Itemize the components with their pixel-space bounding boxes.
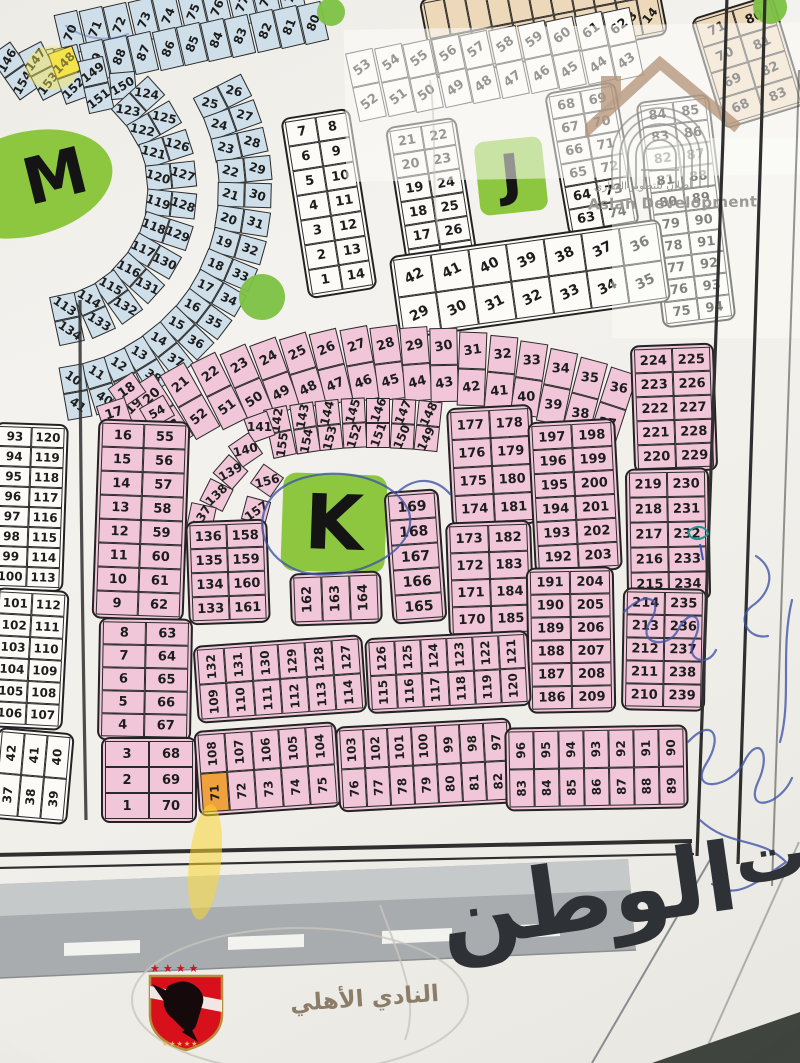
plot-cell: 85	[559, 768, 585, 806]
plot-cell: 94	[697, 294, 732, 320]
plot-cell: 148	[416, 400, 442, 427]
k-col-210-239: 214235213236212237211238210239	[621, 587, 707, 711]
plot-cell: 98	[459, 723, 485, 763]
plot-cell: 115	[28, 527, 62, 548]
plot-cell: 201	[575, 494, 616, 520]
plot-cell: 180	[492, 464, 532, 494]
plot-cell: 56	[143, 448, 186, 473]
plot-cell: 195	[534, 472, 575, 498]
plot-cell: 105	[278, 727, 308, 768]
k-left-col-c: 368269170	[101, 737, 197, 823]
plot-cell: 145	[341, 397, 366, 423]
plot-cell: 126	[368, 641, 396, 676]
k-row-162-164: 162163164	[289, 570, 383, 626]
plot-cell: 93	[583, 730, 609, 768]
plot-cell: 34	[586, 266, 629, 309]
plot-cell: 30	[430, 328, 459, 366]
plot-cell: 103	[0, 635, 30, 659]
plot-cell: 112	[31, 593, 65, 617]
plot-cell: 78	[389, 766, 415, 806]
plot-cell: 107	[26, 703, 60, 727]
m-ring-inner-item: 127120	[145, 161, 197, 192]
plot-cell: 90	[658, 728, 684, 766]
plot-cell: 69	[149, 767, 193, 793]
plot-cell: 233	[668, 546, 706, 572]
k-row-109-132-a: 132131130129128127109110111112113114	[192, 634, 367, 724]
plot-cell: 151	[366, 423, 390, 448]
plot-cell: 111	[253, 679, 282, 716]
plot-cell: 185	[491, 605, 531, 633]
plot-cell: 216	[630, 547, 668, 573]
plot-cell: 64	[145, 645, 188, 669]
plot-cell: 102	[0, 613, 31, 637]
plot-cell: 63	[146, 622, 189, 646]
plot-cell: 106	[0, 701, 27, 725]
plot-cell: 236	[664, 615, 702, 639]
plot-cell: 237	[664, 638, 702, 662]
k-inner-arc-item: 148149	[413, 400, 442, 452]
plot-cell: 154	[293, 426, 321, 454]
plot-cell: 70	[149, 793, 193, 819]
plot-cell: 73	[254, 768, 284, 809]
plot-cell: 133	[192, 596, 230, 621]
plot-cell: 178	[489, 408, 529, 438]
plot-cell: 239	[663, 684, 701, 708]
plot-cell: 91	[633, 729, 659, 767]
plot-cell: 124	[420, 638, 448, 673]
k-inner-arc-item: 145152	[341, 397, 368, 448]
plot-cell: 177	[450, 410, 490, 440]
k-inner-corner-inner-item: 156	[250, 464, 284, 498]
plot-cell: 196	[533, 448, 574, 474]
plot-cell: 183	[489, 551, 529, 579]
plot-cell: 29	[399, 326, 430, 365]
plot-cell: 41	[431, 249, 474, 292]
plot-cell: 134	[55, 316, 86, 346]
plot-cell: 181	[493, 492, 533, 522]
plot-cell: 75	[664, 298, 699, 324]
plot-cell: 174	[455, 494, 495, 524]
m-ring-outer-item: 3021	[218, 182, 273, 208]
plot-cell: 33	[515, 341, 548, 382]
plot-cell: 225	[672, 347, 711, 372]
k-left-col-b: 863764665566467	[97, 617, 193, 742]
plot-cell: 169	[388, 493, 437, 521]
plot-cell: 66	[144, 691, 187, 715]
plot-cell: 5	[101, 690, 144, 714]
plot-cell: 228	[674, 419, 713, 444]
k-col-220-229: 224225223226222227221228220229	[630, 343, 718, 474]
plot-cell: 121	[498, 634, 526, 669]
plot-cell: 128	[170, 191, 198, 219]
plot-cell: 98	[0, 526, 28, 547]
k-col-165-169: 169168167166165	[383, 488, 447, 625]
plot-cell: 72	[227, 770, 257, 811]
plot-cell: 207	[571, 639, 611, 663]
plot-cell: 119	[474, 669, 502, 704]
plot-cell: 150	[390, 423, 415, 449]
w-col-101-112: 101112102111103110104109105108106107	[0, 587, 70, 731]
plot-cell: 38	[544, 233, 587, 276]
k-inner-arc-item: 144153	[315, 399, 344, 451]
plot-cell: 120	[145, 163, 173, 191]
plot-cell: 96	[508, 731, 534, 769]
plot-cell: 186	[532, 686, 572, 710]
plot-cell: 93	[0, 426, 32, 447]
plot-cell: 110	[226, 681, 255, 718]
plot-cell: 168	[389, 517, 438, 545]
k-col-174-181: 177178176179175180174181	[446, 404, 538, 528]
plot-cell: 202	[576, 518, 617, 544]
plot-cell: 42	[457, 368, 486, 406]
plot-cell: 101	[0, 591, 32, 615]
plot-cell: 40	[44, 735, 71, 779]
plot-cell: 31	[458, 331, 487, 369]
plot-cell: 203	[578, 542, 619, 568]
plot-cell: 123	[446, 637, 474, 672]
plot-cell: 235	[665, 592, 703, 616]
plot-cell: 28	[237, 127, 269, 157]
plot-cell: 114	[334, 673, 363, 710]
plot-cell: 187	[531, 663, 571, 687]
plot-cell: 81	[461, 762, 487, 802]
plot-cell: 231	[667, 496, 705, 522]
plot-cell: 143	[289, 401, 317, 429]
plot-cell: 100	[0, 566, 27, 587]
plot-cell: 10	[97, 567, 140, 592]
plot-cell: 173	[449, 525, 489, 553]
plot-cell: 36	[619, 223, 662, 266]
plot-cell: 33	[549, 271, 592, 314]
w-block-37-42: 424140373839	[0, 727, 75, 825]
plot-cell: 57	[142, 472, 185, 497]
plot-cell: 108	[27, 681, 61, 705]
plot-cell: 159	[227, 547, 265, 572]
plot-cell: 129	[278, 642, 307, 679]
plot-cell: 226	[673, 371, 712, 396]
plot-cell: 59	[140, 520, 183, 545]
plot-cell: 204	[570, 570, 610, 594]
block-m-letter: M	[17, 138, 94, 216]
plot-cell: 68	[149, 741, 193, 767]
plot-cell: 160	[228, 571, 266, 596]
plot-cell: 200	[574, 470, 615, 496]
watermark-company-name: Aslan Development	[588, 193, 758, 214]
watermark-arabic-text: أصلان للتطوير العقاري	[594, 179, 692, 193]
plot-cell: 131	[224, 646, 253, 683]
k-inner-arc-item: 146151	[366, 398, 390, 448]
plot-cell: 76	[341, 768, 367, 808]
plot-cell: 55	[144, 424, 187, 449]
plot-cell: 163	[321, 576, 351, 622]
w-col-93-120: 9312094119951189611797116981159911410011…	[0, 422, 69, 592]
plot-cell: 14	[100, 471, 143, 496]
plot-cell: 27	[339, 325, 373, 367]
plot-cell: 41	[63, 390, 92, 421]
block-j-letter: J	[498, 147, 525, 205]
k-arc-top-item: 3043	[430, 328, 459, 403]
k-col-215-234: 219230218231217232216233215234	[625, 467, 711, 601]
plot-cell: 171	[451, 579, 491, 607]
plot-cell: 88	[634, 767, 660, 805]
plot-cell: 101	[387, 727, 413, 767]
plot-cell: 132	[197, 648, 226, 685]
plot-cell: 1	[308, 265, 343, 295]
plot-cell: 95	[0, 466, 30, 487]
plot-cell: 166	[393, 567, 442, 595]
plot-cell: 74	[281, 766, 311, 807]
plot-cell: 191	[530, 571, 570, 595]
plot-cell: 212	[626, 637, 664, 661]
plot-cell: 128	[304, 640, 333, 677]
plot-cell: 89	[659, 766, 685, 804]
plot-cell: 112	[280, 677, 309, 714]
j-col-63-74: 686967706671657264736374	[544, 81, 640, 237]
plot-cell: 86	[584, 768, 610, 806]
plot-cell: 118	[448, 671, 476, 706]
m-ring-outer-item: 2922	[216, 155, 272, 185]
plot-cell: 84	[534, 769, 560, 807]
plot-cell: 214	[627, 591, 665, 615]
plot-cell: 96	[0, 486, 30, 507]
plot-cell: 100	[411, 725, 437, 765]
plot-cell: 107	[224, 731, 254, 772]
plot-cell: 14	[339, 260, 374, 290]
plot-cell: 30	[245, 183, 273, 209]
plot-cell: 206	[571, 616, 611, 640]
plot-cell: 119	[30, 447, 64, 468]
plot-cell: 80	[437, 763, 463, 803]
plot-cell: 117	[422, 672, 450, 707]
plot-map-photo: M J K 7071727374757677787991908988878685…	[0, 0, 800, 1063]
plot-cell: 113	[26, 567, 60, 588]
plot-cell: 224	[634, 348, 673, 373]
plot-cell: 31	[241, 209, 271, 238]
plot-cell: 104	[305, 725, 335, 766]
plot-cell: 104	[0, 657, 29, 681]
plot-cell: 15	[101, 447, 144, 472]
plot-cell: 32	[487, 335, 518, 374]
plot-cell: 149	[413, 425, 439, 452]
plot-cell: 99	[0, 546, 28, 567]
k-inner-left-col: 136158135159134160133161	[185, 519, 271, 626]
plot-cell: 97	[0, 506, 29, 527]
plot-cell: 105	[0, 679, 28, 703]
plot-cell: 211	[625, 660, 663, 684]
plot-cell: 218	[629, 497, 667, 523]
plot-cell: 29	[243, 155, 272, 183]
plot-cell: 230	[667, 471, 705, 497]
plot-cell: 2	[105, 767, 149, 793]
plot-cell: 58	[141, 496, 184, 521]
plot-cell: 39	[40, 777, 67, 821]
plot-cell: 182	[488, 524, 528, 552]
block-m-badge: M	[0, 113, 124, 256]
plot-cell: 67	[144, 714, 187, 738]
plot-cell: 115	[370, 675, 398, 710]
plot-cell: 127	[331, 638, 360, 675]
plot-cell: 92	[608, 729, 634, 767]
plot-cell: 213	[626, 614, 664, 638]
plot-cell: 210	[625, 683, 663, 707]
plot-cell: 43	[610, 41, 645, 81]
plot-cell: 62	[138, 592, 181, 617]
plot-cell: 144	[315, 399, 341, 426]
plot-cell: 194	[535, 496, 576, 522]
plot-cell: 193	[536, 520, 577, 546]
plot-cell: 83	[509, 769, 535, 807]
plot-cell: 116	[396, 673, 424, 708]
k-row-109-132-b: 126125124123122121115116117118119120	[364, 630, 532, 714]
plot-cell: 109	[28, 659, 62, 683]
plot-cell: 120	[500, 668, 528, 703]
plot-cell: 11	[97, 543, 140, 568]
plot-cell: 71	[200, 772, 230, 813]
plot-cell: 95	[533, 731, 559, 769]
plot-cell: 170	[452, 606, 492, 634]
plot-cell: 40	[468, 244, 511, 287]
plot-cell: 238	[663, 661, 701, 685]
block-j-badge: J	[473, 136, 548, 217]
plot-cell: 130	[251, 644, 280, 681]
plot-cell: 205	[570, 593, 610, 617]
plot-cell: 1	[105, 793, 149, 819]
j-col-1-14: 7869510411312213114	[280, 108, 378, 300]
k-row-71-108-c: 9695949392919083848586878889	[504, 724, 688, 811]
plot-cell: 37	[581, 228, 624, 271]
plot-cell: 28	[369, 325, 402, 365]
plot-cell: 106	[251, 729, 281, 770]
plot-cell: 39	[506, 239, 549, 282]
k-arc-top-item: 3142	[457, 331, 488, 406]
plot-cell: 108	[197, 733, 227, 774]
plot-cell: 158	[226, 523, 264, 548]
plot-cell: 10	[59, 363, 88, 394]
plot-cell: 13	[99, 495, 142, 520]
plot-cell: 103	[339, 729, 365, 769]
plot-cell: 32	[511, 276, 554, 319]
plot-cell: 179	[491, 436, 531, 466]
plot-cell: 35	[624, 260, 667, 303]
plot-cell: 134	[191, 572, 229, 597]
plot-cell: 111	[30, 615, 64, 639]
k-row-71-108-a: 1081071061051047172737475	[193, 721, 342, 817]
k-col-192-203: 197198196199195200194201193202192203	[527, 418, 623, 574]
plot-cell: 9	[96, 590, 139, 615]
plot-cell: 184	[490, 578, 530, 606]
plot-cell: 167	[391, 542, 440, 570]
plot-cell: 42	[393, 255, 436, 298]
plot-cell: 164	[349, 575, 379, 621]
k-row-71-108-b: 10310210110099989776777879808182	[335, 717, 515, 812]
plot-cell: 31	[474, 282, 517, 325]
plot-cell: 175	[453, 466, 493, 496]
plot-cell: 199	[572, 446, 613, 472]
plot-cell: 109	[199, 683, 228, 720]
plot-cell: 135	[190, 548, 228, 573]
plot-cell: 220	[637, 444, 676, 469]
plot-cell: 94	[558, 730, 584, 768]
plot-cell: 232	[668, 521, 706, 547]
plot-cell: 99	[435, 724, 461, 764]
plot-cell: 7	[102, 644, 145, 668]
plot-cell: 147	[391, 398, 416, 424]
plot-cell: 156	[250, 464, 284, 498]
plot-cell: 6	[102, 667, 145, 691]
plot-cell: 188	[531, 640, 571, 664]
plot-cell: 197	[531, 424, 572, 450]
plot-cell: 153	[317, 423, 343, 450]
plot-cell: 116	[28, 507, 62, 528]
plot-cell: 229	[675, 443, 714, 468]
plot-cell: 217	[630, 522, 668, 548]
plot-cell: 117	[29, 487, 63, 508]
plot-cell: 127	[170, 161, 198, 189]
plot-cell: 227	[674, 395, 713, 420]
plot-cell: 219	[629, 472, 667, 498]
k-col-170-185: 173182172183171184170185	[445, 520, 535, 639]
plot-cell: 190	[530, 594, 570, 618]
plot-cell: 12	[98, 519, 141, 544]
plot-cell: 222	[636, 396, 675, 421]
plot-cell: 152	[342, 422, 367, 448]
block-k-letter: K	[303, 484, 365, 562]
plot-cell: 77	[365, 767, 391, 807]
plot-cell: 125	[394, 639, 422, 674]
plot-cell: 3	[105, 741, 149, 767]
plot-cell: 113	[307, 675, 336, 712]
plot-cell: 87	[609, 767, 635, 805]
plot-cell: 110	[29, 637, 63, 661]
plot-cell: 65	[145, 668, 188, 692]
plot-cell: 118	[30, 467, 64, 488]
plot-cell: 102	[363, 728, 389, 768]
plot-cell: 209	[572, 685, 612, 709]
plot-cell: 75	[308, 764, 338, 805]
plot-cell: 165	[395, 592, 444, 620]
plot-cell: 136	[189, 524, 227, 549]
plot-cell: 4	[101, 713, 144, 737]
plot-cell: 43	[430, 365, 459, 403]
plot-cell: 114	[27, 547, 61, 568]
block-k-badge: K	[280, 472, 387, 574]
plot-cell: 120	[31, 427, 65, 448]
plot-cell: 208	[571, 662, 611, 686]
plot-cell: 8	[103, 621, 146, 645]
plot-cell: 172	[450, 552, 490, 580]
plot-cell: 146	[366, 398, 390, 423]
road-name-partial-letter: ت	[729, 815, 800, 896]
plot-cell: 161	[229, 595, 267, 620]
k-arc-top-item: 2944	[399, 326, 432, 402]
plot-cell: 79	[413, 764, 439, 804]
plot-cell: 16	[102, 423, 145, 448]
plot-cell: 189	[531, 617, 571, 641]
plot-cell: 30	[436, 287, 479, 330]
plot-cell: 162	[293, 577, 323, 623]
plot-cell: 223	[635, 372, 674, 397]
k-col-186-209: 191204190205189206188207187208186209	[526, 566, 617, 714]
plot-cell: 122	[472, 635, 500, 670]
plot-cell: 221	[636, 420, 675, 445]
plot-cell: 44	[402, 363, 433, 402]
plot-cell: 198	[571, 422, 612, 448]
plot-cell: 61	[138, 568, 181, 593]
k-left-col-a: 1655155614571358125911601061962	[92, 418, 191, 621]
plot-cell: 94	[0, 446, 31, 467]
plot-cell: 60	[139, 544, 182, 569]
k-inner-arc-item: 147150	[390, 398, 417, 449]
